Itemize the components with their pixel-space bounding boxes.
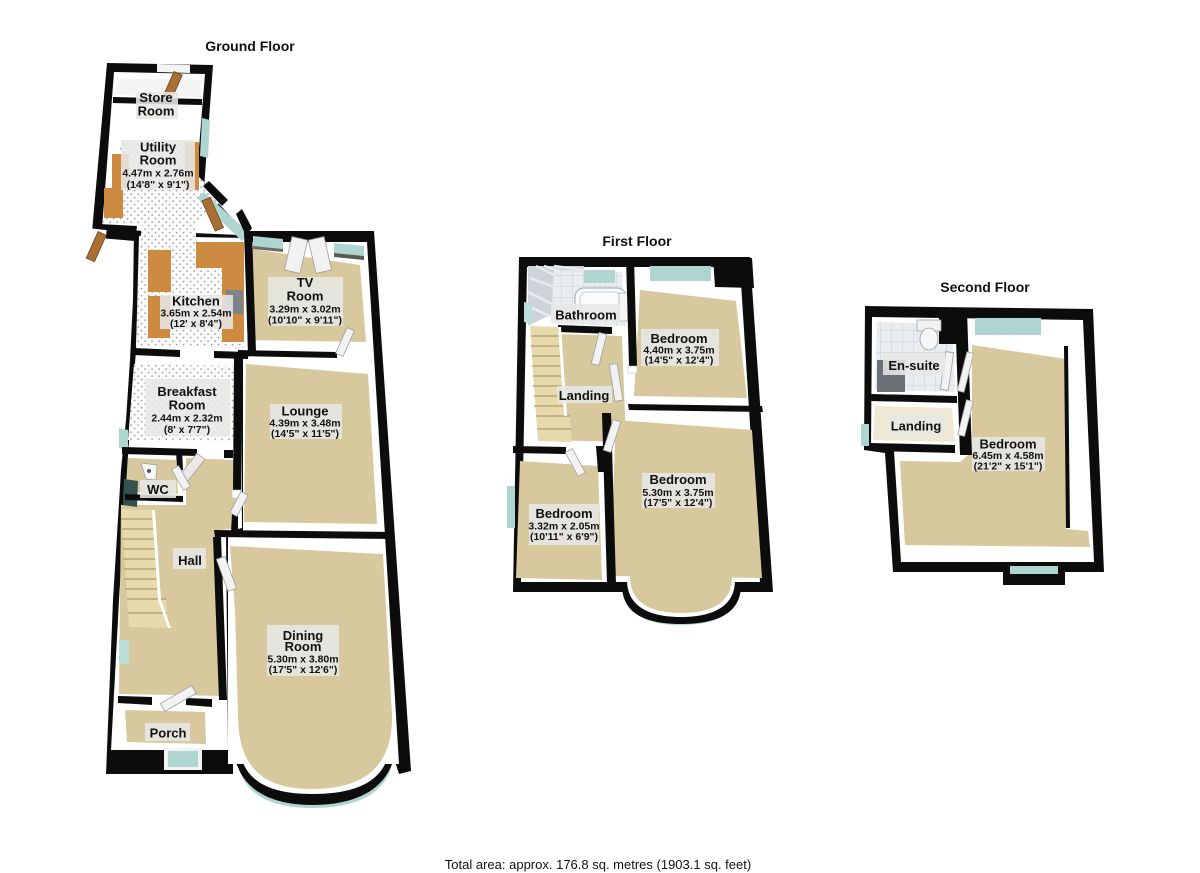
svg-text:(10'10" x 9'11"): (10'10" x 9'11") <box>268 315 342 327</box>
svg-text:(12' x 8'4"): (12' x 8'4") <box>170 318 222 330</box>
svg-text:Porch: Porch <box>150 726 187 741</box>
svg-text:Ground Floor: Ground Floor <box>205 38 295 54</box>
svg-text:Hall: Hall <box>178 553 202 568</box>
svg-text:Room: Room <box>285 639 322 654</box>
svg-text:(10'11" x 6'9"): (10'11" x 6'9") <box>530 531 598 543</box>
svg-text:4.47m x 2.76m: 4.47m x 2.76m <box>122 168 193 180</box>
svg-text:(14'5" x 11'5"): (14'5" x 11'5") <box>271 428 339 440</box>
svg-text:Bedroom: Bedroom <box>535 506 592 521</box>
svg-text:Total area: approx. 176.8 sq.: Total area: approx. 176.8 sq. metres (19… <box>445 857 751 872</box>
svg-text:(21'2" x 15'1"): (21'2" x 15'1") <box>974 461 1043 473</box>
svg-text:(14'5" x 12'4"): (14'5" x 12'4") <box>645 355 714 367</box>
svg-text:Landing: Landing <box>559 388 610 403</box>
svg-text:(17'5" x 12'6"): (17'5" x 12'6") <box>269 664 338 676</box>
svg-text:Bathroom: Bathroom <box>555 308 616 323</box>
svg-text:(17'5" x 12'4"): (17'5" x 12'4") <box>644 497 713 509</box>
svg-text:(14'8" x 9'1"): (14'8" x 9'1") <box>127 179 190 191</box>
svg-text:Landing: Landing <box>891 419 942 434</box>
svg-text:2.44m x 2.32m: 2.44m x 2.32m <box>151 413 222 425</box>
svg-text:Second Floor: Second Floor <box>940 279 1030 295</box>
svg-text:Room: Room <box>169 398 206 413</box>
svg-text:Room: Room <box>140 153 177 168</box>
svg-text:Room: Room <box>138 104 175 119</box>
svg-text:Bedroom: Bedroom <box>649 472 706 487</box>
svg-text:WC: WC <box>147 482 169 497</box>
svg-text:Room: Room <box>287 289 324 304</box>
svg-text:Lounge: Lounge <box>282 404 329 419</box>
svg-text:En-suite: En-suite <box>888 358 939 373</box>
svg-text:(8' x 7'7"): (8' x 7'7") <box>164 424 210 436</box>
svg-text:First Floor: First Floor <box>602 233 672 249</box>
svg-text:Kitchen: Kitchen <box>172 294 220 309</box>
